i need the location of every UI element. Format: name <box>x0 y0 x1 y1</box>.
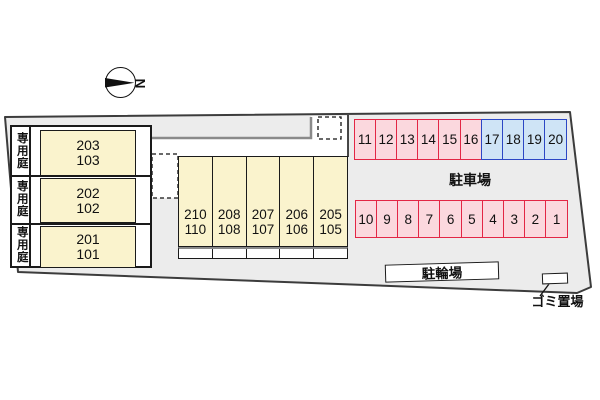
parking-stall: 11 <box>354 119 377 160</box>
parking-stall: 1 <box>545 200 568 238</box>
parking-stall: 18 <box>502 119 525 160</box>
parking-stall: 20 <box>544 119 567 160</box>
parking-stall: 15 <box>438 119 461 160</box>
parking-stall: 12 <box>375 119 398 160</box>
site-plan: N 専用庭203103専用庭202102専用庭201101 2101102081… <box>0 0 600 400</box>
garbage-box <box>542 273 568 285</box>
parking-lot-label: 駐車場 <box>420 170 520 190</box>
north-label: N <box>132 79 147 89</box>
parking-stall: 5 <box>461 200 484 238</box>
parking-stall: 8 <box>397 200 420 238</box>
north-arrow-icon <box>105 78 135 88</box>
parking-stall: 14 <box>417 119 440 160</box>
parking-stall: 17 <box>481 119 504 160</box>
parking-stall: 10 <box>355 200 378 238</box>
parking-stall: 16 <box>460 119 483 160</box>
parking-stall: 3 <box>503 200 526 238</box>
parking-stall: 7 <box>418 200 441 238</box>
parking-stall: 19 <box>523 119 546 160</box>
garbage-area-label: ゴミ置場 <box>515 291 600 310</box>
parking-stall: 6 <box>439 200 462 238</box>
parking-stall: 9 <box>376 200 399 238</box>
bicycle-parking-label: 駐輪場 <box>421 261 462 282</box>
parking-stall: 2 <box>524 200 547 238</box>
bicycle-parking-box: 駐輪場 <box>385 261 499 282</box>
parking-stall: 4 <box>482 200 505 238</box>
parking-stall: 13 <box>396 119 419 160</box>
